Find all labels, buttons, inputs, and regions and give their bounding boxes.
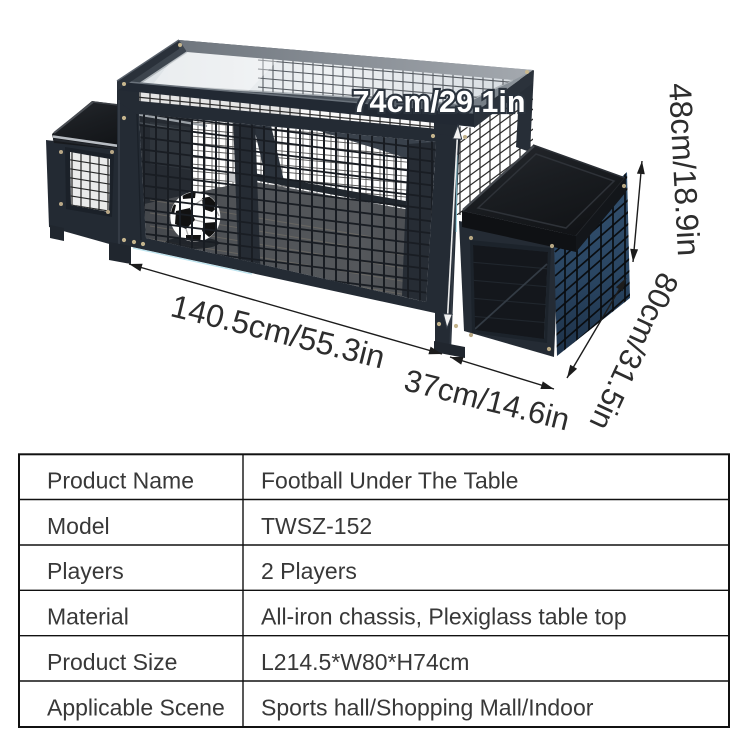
svg-text:Model: Model [47,513,110,539]
svg-text:Players: Players [47,558,124,584]
svg-text:Product Size: Product Size [47,649,177,675]
svg-text:Football Under The Table: Football Under The Table [261,467,518,493]
svg-text:TWSZ-152: TWSZ-152 [261,513,372,539]
svg-text:74cm/29.1in: 74cm/29.1in [353,85,526,119]
svg-text:All-iron chassis, Plexiglass t: All-iron chassis, Plexiglass table top [261,604,627,630]
svg-text:L214.5*W80*H74cm: L214.5*W80*H74cm [261,649,469,675]
svg-text:Product Name: Product Name [47,467,194,493]
svg-text:Applicable Scene: Applicable Scene [47,695,225,721]
svg-text:Sports hall/Shopping Mall/Indo: Sports hall/Shopping Mall/Indoor [261,695,594,721]
svg-text:Material: Material [47,604,129,630]
svg-text:2 Players: 2 Players [261,558,357,584]
